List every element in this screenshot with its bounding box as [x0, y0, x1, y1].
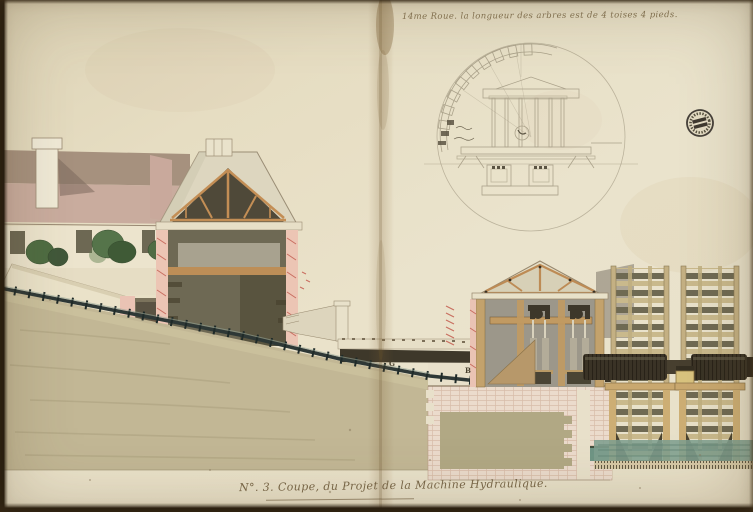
scanned-drawing-sheet: 14me Roue. la longueur des arbres est de…	[0, 0, 753, 512]
pavilion-chimney	[206, 139, 232, 156]
center-fold-crease	[368, 0, 394, 512]
masonry-foundation	[426, 386, 612, 480]
tailrace-water	[594, 440, 753, 469]
top-annotation: 14me Roue. la longueur des arbres est de…	[402, 10, 678, 22]
pipe-label-b: B	[465, 366, 471, 375]
pipe-label-g: G	[389, 359, 395, 368]
chimney	[32, 138, 62, 208]
drawing-canvas	[0, 0, 753, 512]
